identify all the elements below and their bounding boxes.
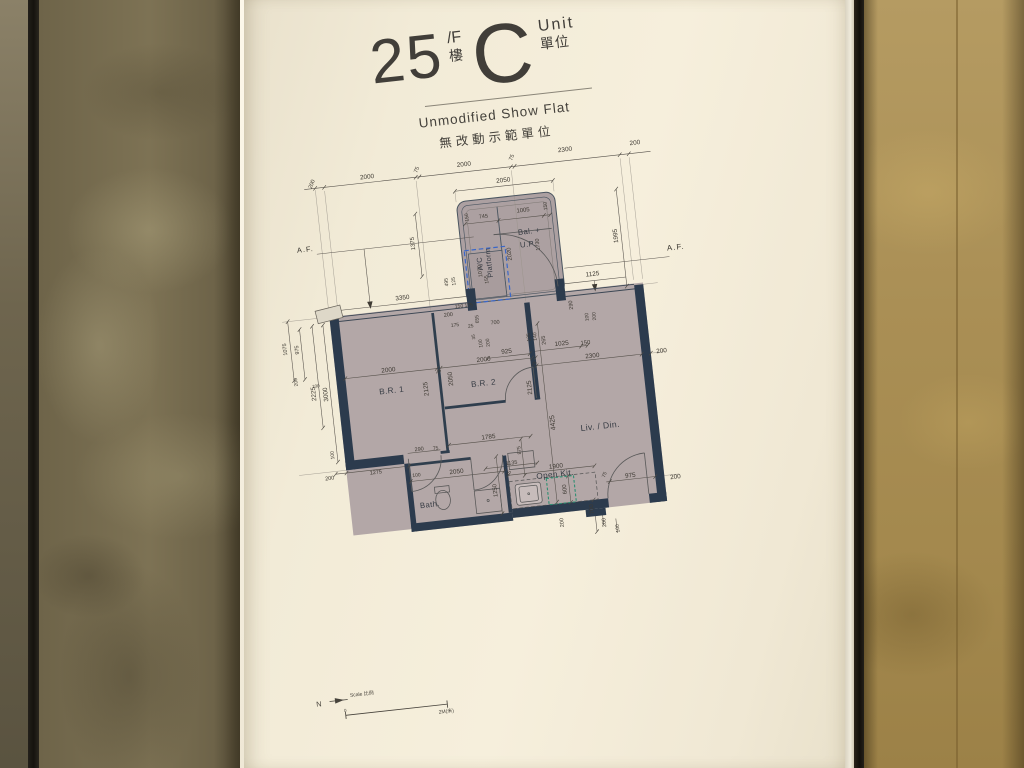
title-row: 25 /F 樓 C Unit 單位 [321, 7, 627, 107]
unit-label-group: Unit 單位 [537, 14, 577, 52]
right-gold-wall [864, 0, 1024, 768]
dim-label: 100 [584, 312, 591, 321]
dim-label: 700 [490, 320, 500, 327]
wall-seam [28, 0, 39, 768]
dim-label: 25 [468, 323, 474, 330]
dim-label: 75 [433, 445, 439, 452]
dim-label: 265 [541, 335, 548, 345]
dim-label: 745 [479, 214, 489, 221]
unit-letter: C [469, 17, 537, 90]
dim-label: 975 [294, 345, 301, 355]
dim-label: 200 [293, 377, 300, 386]
scale-label: 0 [344, 708, 348, 713]
dim-label: 975 [625, 472, 637, 480]
right-wall-seam [956, 0, 958, 768]
poster-right-edge [845, 0, 854, 768]
dim-label: 125 [451, 277, 458, 286]
scale-label: 2M(米) [438, 707, 454, 716]
dim-label: 200 [656, 347, 668, 355]
dim-label: 495 [443, 277, 450, 286]
dim-label: 200 [444, 312, 454, 319]
dim-label: 700 [589, 503, 596, 514]
floor-number: 25 [367, 27, 446, 94]
kitchen-sink [515, 482, 543, 506]
showflat-poster: 25 /F 樓 C Unit 單位 Unmodified Show Flat 無… [244, 0, 845, 768]
dim-label: 100 [412, 472, 421, 479]
left-wall-panel [0, 0, 28, 768]
dim-label: 75 [508, 154, 516, 162]
dim-label: 3350 [395, 294, 410, 303]
dim-label: 200 [591, 312, 598, 321]
dark-frame-strip [854, 0, 864, 768]
dim-label: 1075 [282, 343, 289, 356]
dim-label: 290 [414, 446, 424, 453]
dim-label: 200 [325, 475, 335, 482]
dim-label: 100 [312, 383, 321, 389]
dim-label: 200 [670, 473, 682, 481]
dim-label: 1995 [612, 228, 621, 243]
dim-label: 600 [562, 483, 569, 494]
dim-label: 925 [501, 348, 513, 356]
dim-label: 150 [580, 340, 591, 347]
left-textured-wall [39, 0, 240, 768]
dim-label: 1135 [505, 460, 517, 467]
unit-label-cjk: 單位 [539, 32, 577, 52]
dim-label: 175 [451, 322, 460, 329]
floor-cjk: 樓 [448, 47, 465, 65]
dim-label: 655 [474, 314, 481, 323]
poster-content: 25 /F 樓 C Unit 單位 Unmodified Show Flat 無… [244, 0, 845, 768]
dim-label: 100 [478, 339, 485, 348]
dim-label: 2000 [456, 160, 471, 169]
dim-label: 2050 [496, 176, 511, 185]
scale-label: Scale 比例 [350, 689, 375, 699]
north-compass-icon [335, 697, 345, 703]
dim-label: 875 [516, 446, 523, 455]
floor-suffix: /F [446, 29, 463, 49]
dim-label: 2000 [360, 173, 375, 182]
af-label: A.F. [666, 242, 685, 253]
dim-label: 150 [542, 201, 549, 210]
dim-label: 1375 [410, 236, 417, 250]
dim-label: 100 [615, 524, 622, 533]
dim-label: 200 [629, 139, 641, 147]
dim-label: 200 [485, 338, 492, 347]
floor-suffix-group: /F 樓 [446, 29, 465, 65]
dim-label: 290 [568, 300, 575, 310]
dim-label: 3000 [322, 387, 331, 402]
room-label: U.P. [520, 239, 536, 250]
dim-label: 100 [330, 451, 337, 460]
dim-label: 200 [559, 518, 566, 528]
dim-label: 140 [532, 332, 539, 341]
floor-plan: 2002000752000752300200205015074510051501… [248, 111, 765, 742]
dim-label: 200 [601, 518, 608, 528]
af-label: A.F. [296, 244, 314, 255]
scale-label: N [316, 699, 322, 709]
dim-label: 2300 [558, 146, 573, 155]
dim-label: 1125 [585, 270, 600, 279]
dim-label: 75 [413, 166, 421, 174]
dim-label: 150 [464, 213, 471, 222]
